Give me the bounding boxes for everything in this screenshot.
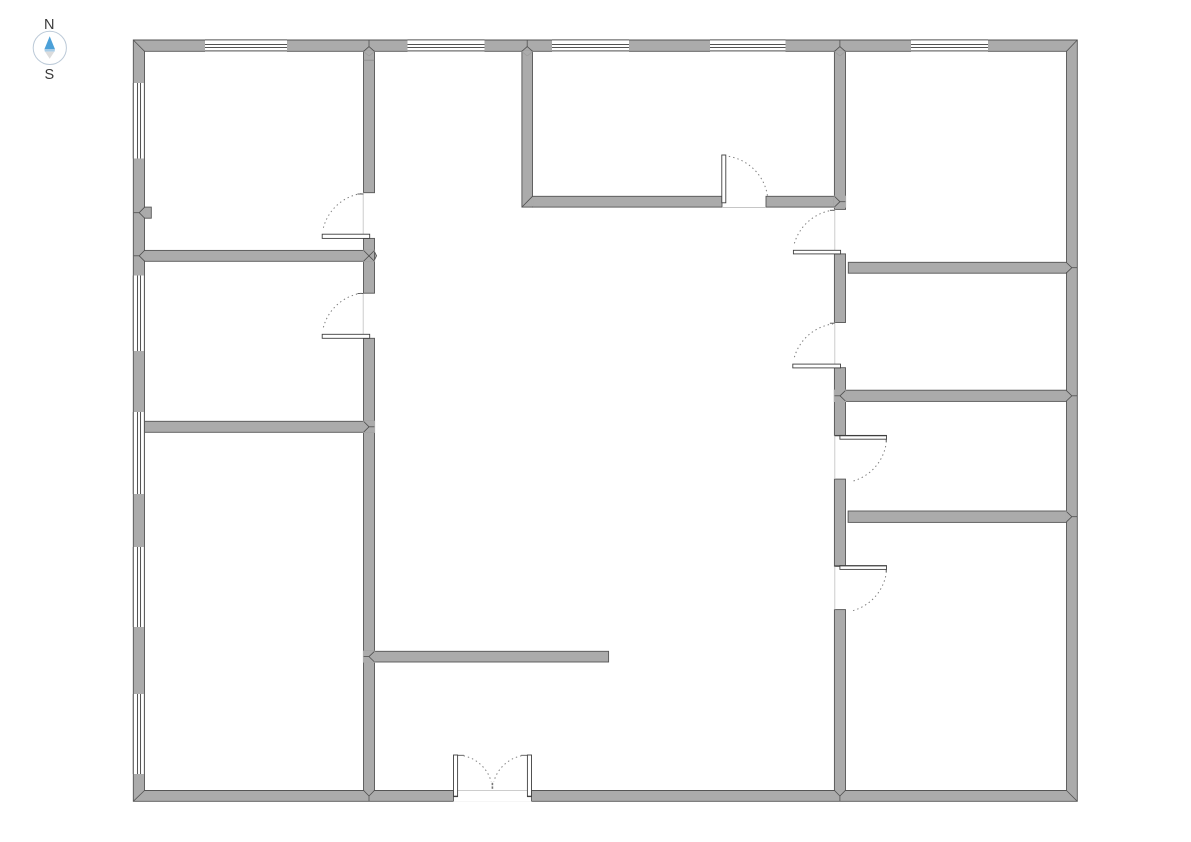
svg-text:N: N — [44, 17, 54, 33]
svg-text:S: S — [44, 67, 54, 83]
